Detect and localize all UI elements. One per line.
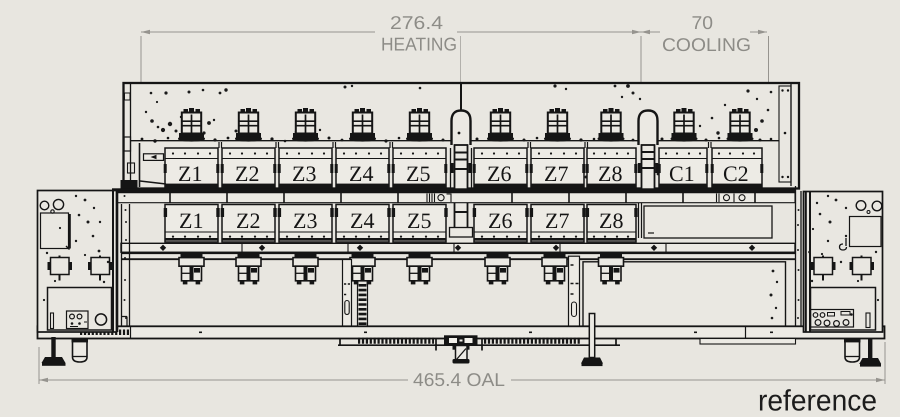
svg-text:Z6: Z6 xyxy=(488,208,512,233)
svg-text:HEATING: HEATING xyxy=(381,34,457,55)
svg-text:Z5: Z5 xyxy=(407,208,431,233)
svg-text:C2: C2 xyxy=(723,161,749,186)
svg-text:Z4: Z4 xyxy=(349,161,373,186)
svg-text:C1: C1 xyxy=(669,161,695,186)
svg-text:reference: reference xyxy=(758,385,877,417)
svg-text:Z5: Z5 xyxy=(406,161,430,186)
svg-text:Z2: Z2 xyxy=(236,208,260,233)
svg-text:70: 70 xyxy=(692,12,714,33)
svg-text:Z3: Z3 xyxy=(292,161,316,186)
svg-text:465.4 OAL: 465.4 OAL xyxy=(413,369,505,390)
svg-text:Z7: Z7 xyxy=(544,161,568,186)
svg-text:Z4: Z4 xyxy=(350,208,374,233)
svg-text:Z8: Z8 xyxy=(599,208,623,233)
svg-text:Z6: Z6 xyxy=(487,161,511,186)
svg-text:Z3: Z3 xyxy=(293,208,317,233)
svg-text:Z1: Z1 xyxy=(178,161,202,186)
svg-text:276.4: 276.4 xyxy=(390,12,443,33)
svg-text:Z7: Z7 xyxy=(545,208,569,233)
svg-text:Z1: Z1 xyxy=(179,208,203,233)
svg-text:Z8: Z8 xyxy=(598,161,622,186)
svg-text:Z2: Z2 xyxy=(235,161,259,186)
svg-text:COOLING: COOLING xyxy=(662,34,751,55)
